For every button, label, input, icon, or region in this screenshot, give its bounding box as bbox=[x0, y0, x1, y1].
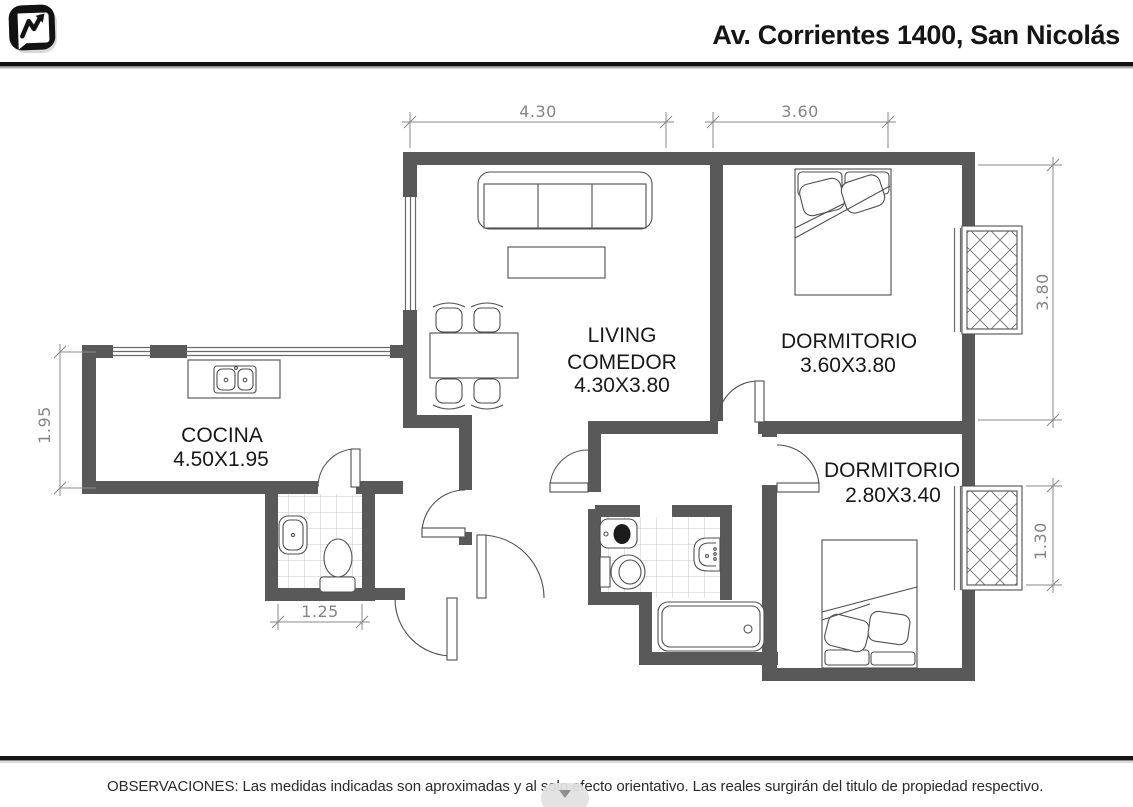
toilette-sink bbox=[279, 516, 307, 554]
bed-dormitorio1 bbox=[795, 169, 891, 295]
bed-dormitorio2 bbox=[822, 540, 917, 668]
dim-label-1-95: 1.95 bbox=[35, 406, 54, 444]
dimension-bottom: 1.25 bbox=[270, 602, 370, 630]
observations-note: OBSERVACIONES: Las medidas indicadas son… bbox=[107, 778, 1117, 795]
dormitorio2-door bbox=[777, 445, 819, 492]
dim-label-3-60: 3.60 bbox=[781, 102, 819, 121]
cocina-name: COCINA bbox=[181, 424, 263, 447]
dimension-right-lower: 1.30 bbox=[1026, 478, 1062, 593]
dormitorio1-name: DORMITORIO bbox=[781, 330, 917, 353]
room-label-dormitorio2: DORMITORIO 2.80X3.40 bbox=[824, 459, 960, 507]
dim-label-3-80: 3.80 bbox=[1033, 273, 1052, 311]
scroll-down-button[interactable] bbox=[541, 783, 589, 807]
coffee-table bbox=[508, 247, 605, 278]
dormitorio2-name: DORMITORIO bbox=[824, 459, 960, 482]
dormitorio1-dims: 3.60X3.80 bbox=[800, 354, 896, 377]
dormitorio2-dims: 2.80X3.40 bbox=[845, 484, 941, 507]
footer-divider bbox=[0, 756, 1133, 763]
dim-label-1-30: 1.30 bbox=[1031, 522, 1050, 560]
dim-label-1-25: 1.25 bbox=[301, 602, 339, 621]
hall-door bbox=[550, 450, 588, 492]
cocina-dims: 4.50X1.95 bbox=[173, 448, 269, 471]
floorplan-drawing: 4.30 3.60 3.80 1.30 1.95 1.25 bbox=[0, 0, 1133, 807]
room-label-dormitorio1: DORMITORIO 3.60X3.80 bbox=[781, 330, 917, 377]
bathroom-sink bbox=[694, 538, 720, 571]
dimension-top-right: 3.60 bbox=[705, 102, 896, 148]
room-label-living: LIVING COMEDOR 4.30X3.80 bbox=[567, 324, 677, 397]
dormitorio1-door bbox=[718, 381, 764, 422]
corridor-door bbox=[422, 490, 465, 537]
living-name-1: LIVING bbox=[588, 324, 657, 347]
chevron-down-icon bbox=[559, 790, 571, 798]
kitchen-counter bbox=[188, 360, 280, 398]
bathroom-bidet bbox=[600, 519, 637, 548]
dormitorio2-window bbox=[955, 486, 1023, 590]
bathroom-toilet bbox=[600, 555, 645, 589]
living-name-2: COMEDOR bbox=[567, 351, 677, 374]
bathtub bbox=[658, 602, 764, 651]
toilette-door bbox=[318, 449, 360, 487]
sofa bbox=[478, 172, 652, 229]
room-label-cocina: COCINA 4.50X1.95 bbox=[173, 424, 269, 471]
living-dims: 4.30X3.80 bbox=[574, 374, 670, 397]
dimension-top-left: 4.30 bbox=[402, 102, 674, 148]
dining-set bbox=[430, 303, 518, 409]
dim-label-4-30: 4.30 bbox=[519, 102, 557, 121]
living-left-window bbox=[406, 197, 416, 310]
floorplan-page: Av. Corrientes 1400, San Nicolás bbox=[0, 0, 1133, 807]
entrance-door bbox=[395, 598, 457, 660]
living-hall-door bbox=[477, 535, 544, 598]
dormitorio1-window bbox=[955, 226, 1023, 334]
